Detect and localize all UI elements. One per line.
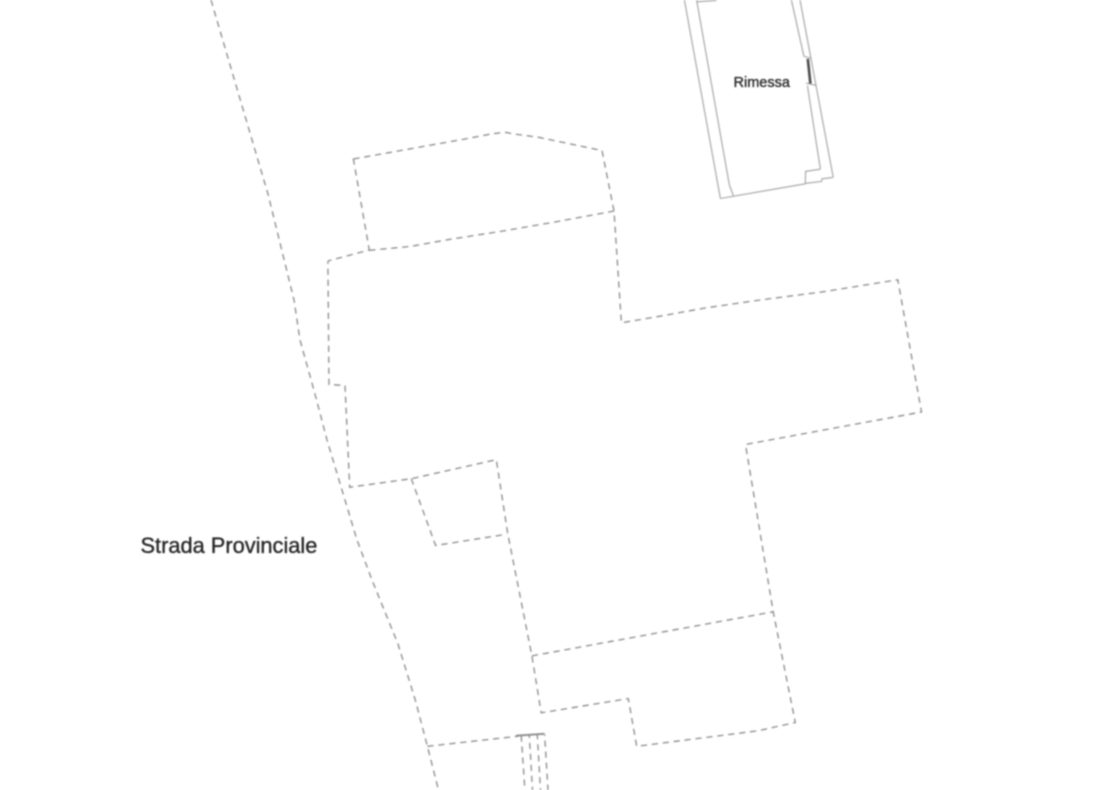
svg-text:Strada Provinciale: Strada Provinciale xyxy=(141,533,318,558)
svg-text:Rimessa: Rimessa xyxy=(734,75,791,91)
